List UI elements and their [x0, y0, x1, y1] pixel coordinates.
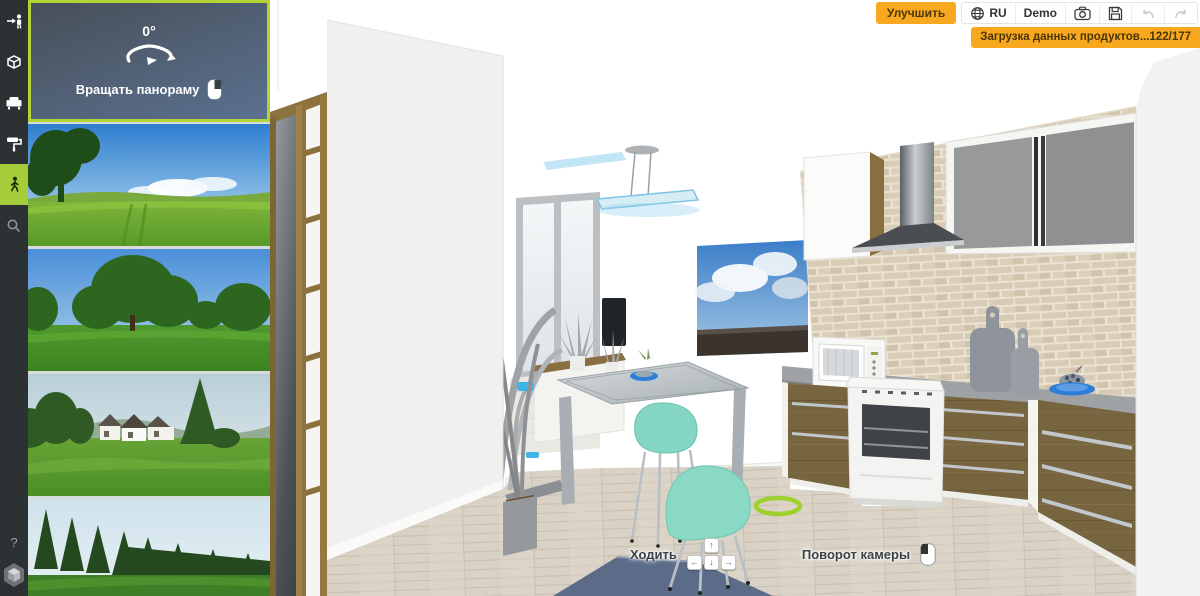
loading-toast: Загрузка данных продуктов...122/177 — [971, 27, 1200, 48]
arrow-key-up[interactable]: ↑ — [704, 538, 719, 553]
camera-rotate-label: Поворот камеры — [802, 547, 910, 562]
rotate-panorama-label: Вращать панораму — [76, 82, 200, 97]
stove — [846, 377, 944, 508]
walk-label: Ходить — [630, 547, 677, 562]
arrow-keypad: ↑ ← ↓ → — [687, 538, 736, 570]
top-toolbar: Улучшить RU Demo — [876, 2, 1198, 24]
sidebar-item-enter-walk[interactable] — [0, 0, 28, 41]
sidebar-item-walk-mode[interactable] — [0, 164, 28, 205]
wardrobe — [270, 92, 327, 596]
language-button[interactable]: RU — [962, 3, 1014, 23]
walk-controls: Ходить ↑ ← ↓ → Поворот камеры — [630, 538, 936, 570]
save-button[interactable] — [1099, 3, 1131, 23]
rotation-angle: 0° — [142, 23, 155, 39]
rotate-panorama-icon — [117, 43, 181, 69]
language-label: RU — [989, 6, 1006, 20]
mouse-right-button-icon — [207, 79, 222, 100]
sofa-icon — [5, 95, 23, 111]
arrow-key-left[interactable]: ← — [687, 555, 702, 570]
planner-app: ? 0° Вращать панораму — [0, 0, 1200, 596]
3d-viewport[interactable] — [270, 0, 1200, 596]
sidebar-item-furniture[interactable] — [0, 82, 28, 123]
demo-button[interactable]: Demo — [1015, 3, 1065, 23]
redo-icon — [1173, 6, 1189, 21]
panorama-thumbnail-forest[interactable] — [28, 499, 270, 596]
save-icon — [1108, 6, 1123, 21]
panorama-thumbnail-park[interactable] — [28, 249, 270, 371]
undo-button[interactable] — [1131, 3, 1164, 23]
screenshot-button[interactable] — [1065, 3, 1099, 23]
room-3d-icon — [5, 53, 23, 71]
toolbar-chip-group: RU Demo — [961, 2, 1198, 24]
walking-person-icon — [6, 176, 23, 193]
help-button[interactable]: ? — [0, 535, 28, 550]
redo-button[interactable] — [1164, 3, 1197, 23]
search-icon — [6, 218, 22, 234]
icon-sidebar: ? — [0, 0, 28, 596]
camera-icon — [1074, 6, 1091, 21]
app-logo — [2, 562, 26, 588]
right-wall — [1136, 48, 1200, 596]
panorama-thumbnail-house[interactable] — [28, 374, 270, 496]
rotate-panorama-panel: 0° Вращать панораму — [28, 0, 270, 122]
arrow-key-right[interactable]: → — [721, 555, 736, 570]
demo-label: Demo — [1024, 6, 1057, 20]
paint-roller-icon — [5, 135, 23, 152]
panorama-panel: 0° Вращать панораму — [28, 0, 270, 596]
wall-painting — [695, 240, 808, 356]
sidebar-item-search[interactable] — [0, 205, 28, 246]
wall-column — [327, 20, 503, 560]
arrow-key-down[interactable]: ↓ — [704, 555, 719, 570]
tv-screen — [602, 298, 626, 346]
panorama-list — [28, 124, 270, 596]
walk-in-icon — [6, 13, 23, 29]
mouse-left-button-icon — [920, 543, 936, 566]
sidebar-item-rooms[interactable] — [0, 41, 28, 82]
panorama-thumbnail-meadow[interactable] — [28, 124, 270, 246]
improve-button[interactable]: Улучшить — [876, 2, 956, 24]
globe-icon — [970, 6, 985, 21]
sidebar-item-finishes[interactable] — [0, 123, 28, 164]
undo-icon — [1140, 6, 1156, 21]
